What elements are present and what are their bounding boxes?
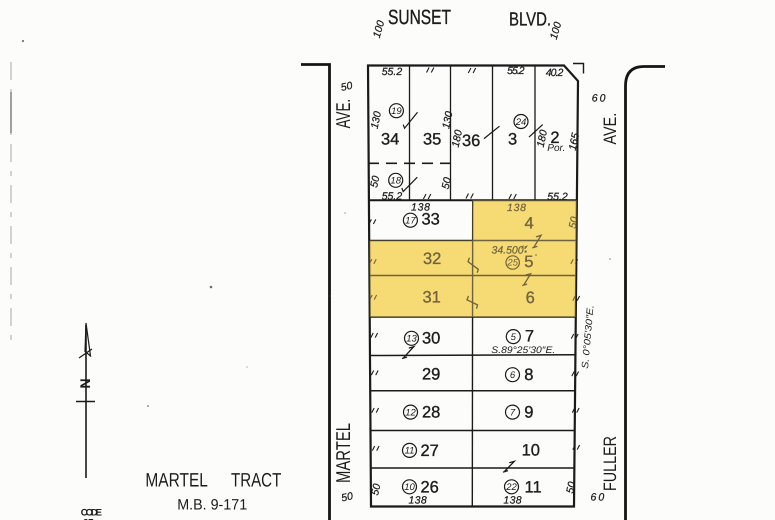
svg-text:13: 13: [406, 334, 417, 345]
svg-text:138: 138: [409, 495, 427, 507]
svg-text:7: 7: [510, 407, 516, 418]
svg-text:7: 7: [525, 328, 534, 346]
svg-text:5: 5: [511, 332, 517, 343]
svg-text:3: 3: [508, 131, 517, 149]
svg-text:35: 35: [423, 131, 441, 149]
svg-text:55.2: 55.2: [507, 65, 525, 77]
svg-text:BLVD.: BLVD.: [509, 9, 551, 30]
svg-text:17: 17: [405, 216, 416, 227]
svg-text:AVE.: AVE.: [600, 113, 620, 145]
svg-text:10: 10: [522, 442, 540, 460]
svg-text:40.2: 40.2: [546, 67, 564, 79]
svg-text:N: N: [77, 378, 93, 388]
svg-text:9: 9: [524, 404, 533, 422]
svg-text:55.2: 55.2: [382, 66, 403, 78]
svg-text:19: 19: [391, 106, 402, 117]
svg-text:MARTEL: MARTEL: [145, 469, 208, 491]
svg-text:TRACT: TRACT: [231, 469, 281, 491]
svg-text:FULLER: FULLER: [600, 436, 620, 491]
svg-text:6: 6: [510, 370, 516, 381]
svg-text:30: 30: [422, 330, 440, 348]
svg-text:29: 29: [422, 366, 440, 384]
svg-text:27: 27: [421, 442, 439, 460]
svg-text:MARTEL: MARTEL: [333, 423, 355, 483]
svg-text:AVE.: AVE.: [333, 99, 355, 129]
svg-text:60: 60: [592, 93, 608, 105]
svg-text:18: 18: [390, 176, 401, 187]
svg-text:12: 12: [405, 407, 416, 418]
svg-text:8: 8: [524, 366, 533, 384]
svg-text:Por.: Por.: [547, 143, 565, 154]
svg-text:28: 28: [422, 404, 440, 422]
svg-text:60: 60: [591, 491, 607, 503]
svg-text:22: 22: [505, 482, 517, 493]
svg-text:34: 34: [381, 131, 399, 149]
svg-text:36: 36: [462, 132, 480, 150]
svg-text:55.2: 55.2: [382, 191, 403, 203]
svg-text:M.B. 9-171: M.B. 9-171: [177, 496, 247, 513]
svg-text:S.89°25′30″E.: S.89°25′30″E.: [491, 345, 555, 356]
svg-text:33: 33: [422, 211, 440, 229]
svg-text:11: 11: [525, 478, 542, 496]
svg-text:10: 10: [404, 482, 415, 493]
svg-text:138: 138: [503, 495, 521, 507]
svg-text:11: 11: [405, 446, 415, 457]
svg-text:SUNSET: SUNSET: [388, 6, 451, 29]
svg-text:24: 24: [515, 117, 527, 128]
